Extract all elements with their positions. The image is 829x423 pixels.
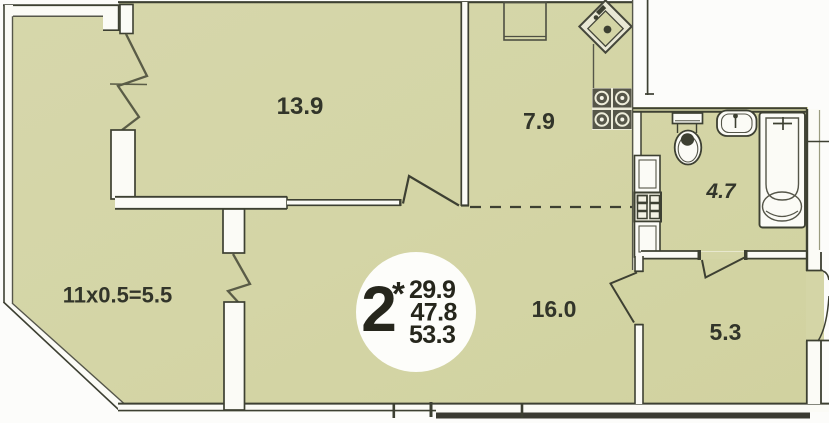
- svg-text:5.3: 5.3: [710, 319, 742, 345]
- svg-text:*: *: [392, 275, 405, 312]
- svg-text:4.7: 4.7: [705, 180, 737, 203]
- svg-text:16.0: 16.0: [532, 296, 577, 322]
- svg-text:11x0.5=5.5: 11x0.5=5.5: [63, 283, 173, 308]
- svg-text:7.9: 7.9: [523, 108, 555, 134]
- svg-text:13.9: 13.9: [277, 93, 324, 120]
- svg-text:53.3: 53.3: [409, 321, 455, 349]
